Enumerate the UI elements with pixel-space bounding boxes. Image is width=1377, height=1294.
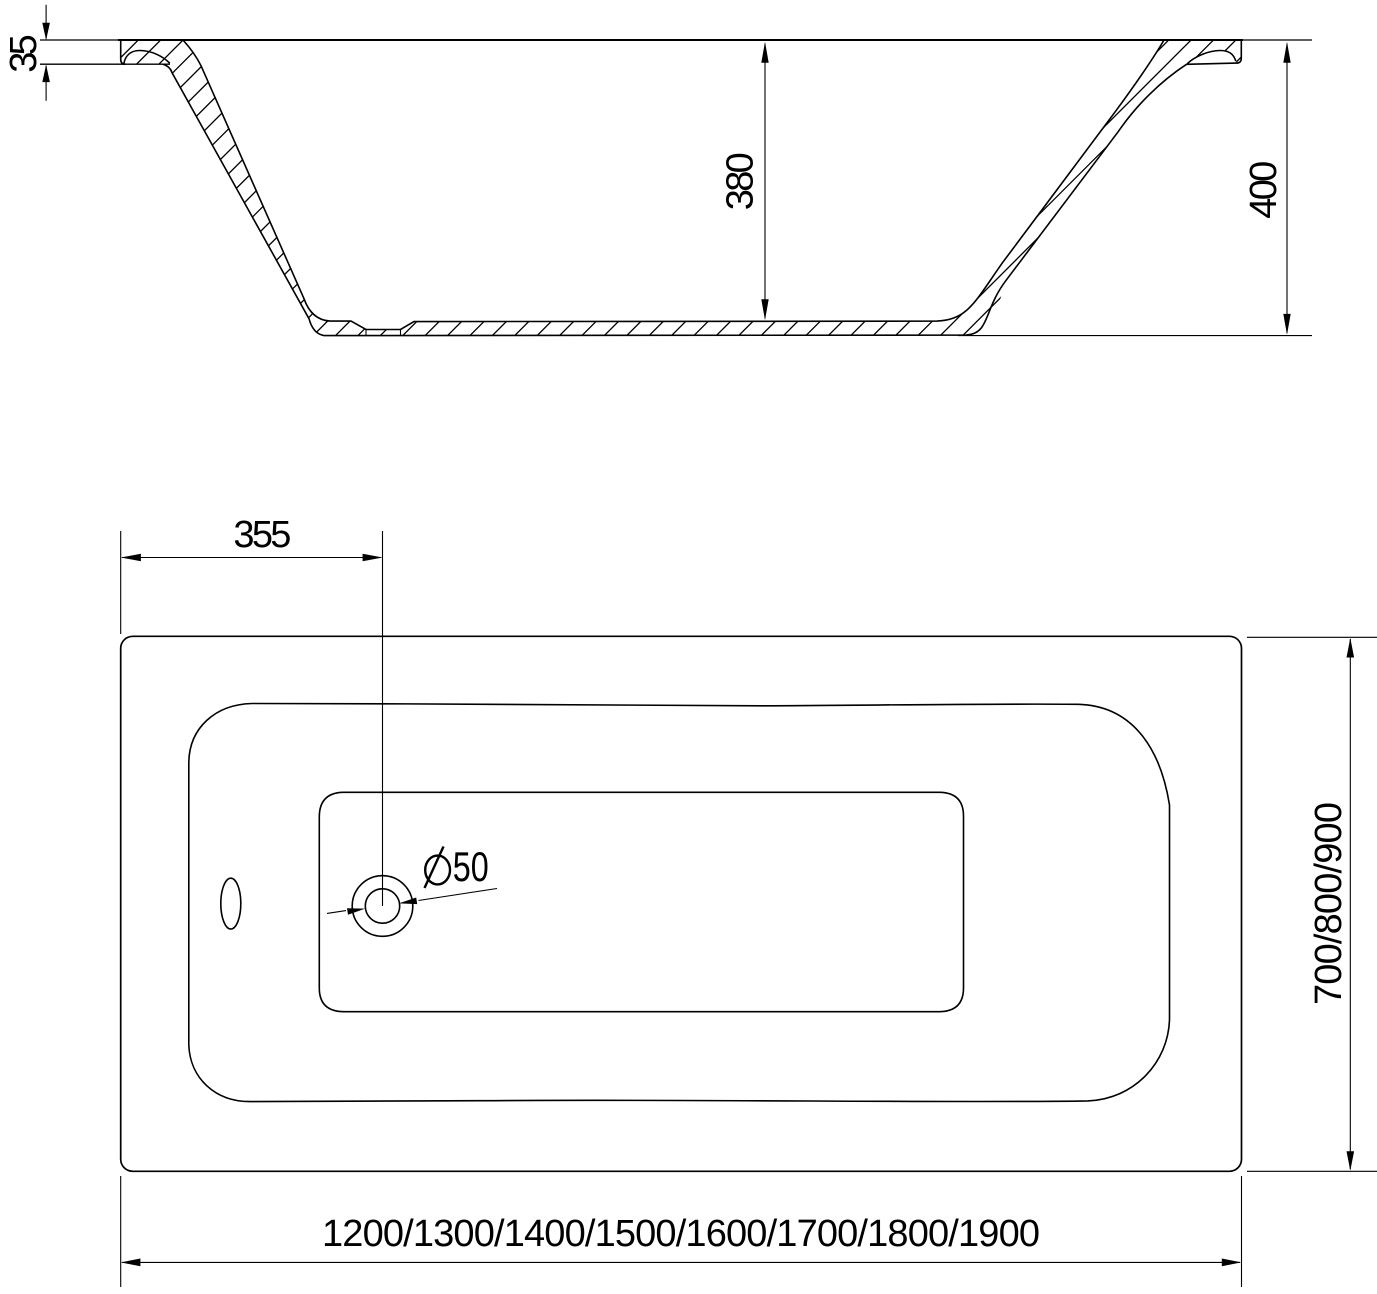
svg-text:700/800/900: 700/800/900	[1308, 802, 1350, 1005]
svg-text:400: 400	[1243, 161, 1285, 219]
svg-text:35: 35	[3, 34, 45, 73]
svg-text:380: 380	[720, 152, 762, 210]
svg-text:355: 355	[233, 514, 291, 556]
svg-text:1200/1300/1400/1500/1600/1700/: 1200/1300/1400/1500/1600/1700/1800/1900	[322, 1213, 1040, 1255]
svg-text:50: 50	[453, 843, 489, 890]
